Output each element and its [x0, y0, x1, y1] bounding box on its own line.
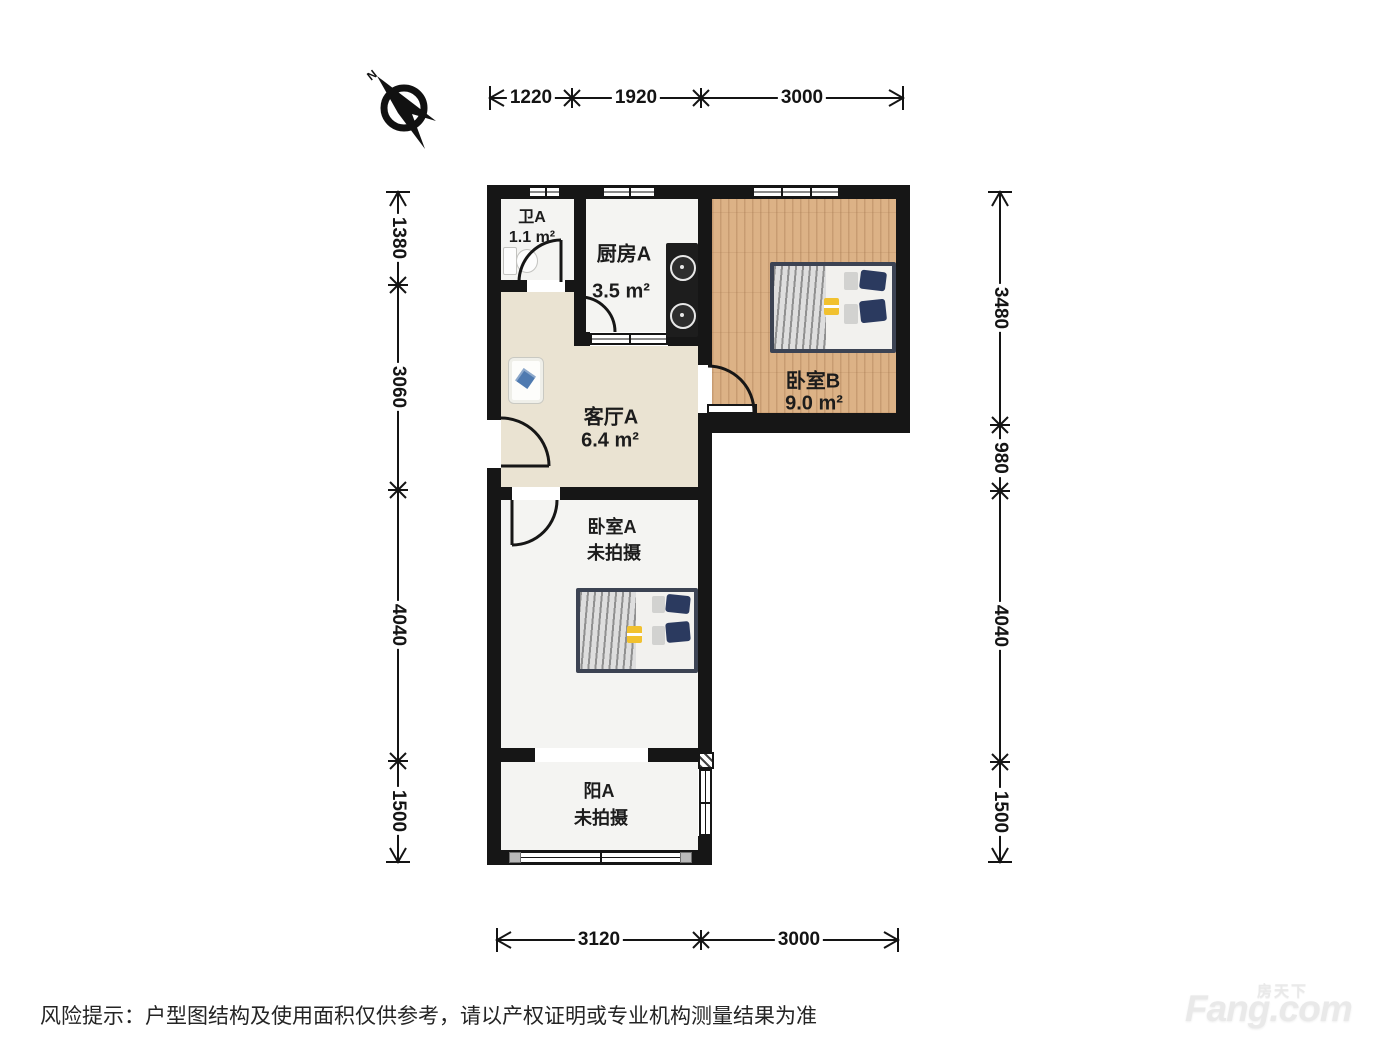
fang-watermark-cn: 房天下 — [1257, 980, 1308, 1001]
room-label-bedroomA-area: 未拍摄 — [587, 539, 641, 565]
dimension-lines — [386, 86, 1012, 952]
dim-left-3: 1500 — [387, 787, 409, 835]
fang-watermark: 房天下 Fang.com — [1185, 988, 1395, 1030]
dim-top-1: 1920 — [612, 87, 660, 109]
dim-left-1: 3060 — [387, 363, 409, 411]
dim-left-0: 1380 — [387, 214, 409, 262]
room-label-bath-name: 卫A — [518, 203, 546, 227]
risk-disclaimer: 风险提示：户型图结构及使用面积仅供参考，请以产权证明或专业机构测量结果为准 — [40, 1000, 817, 1030]
dim-right-0: 3480 — [989, 284, 1011, 332]
room-label-balcony-name: 阳A — [584, 777, 615, 803]
room-label-bedroomB-name: 卧室B — [786, 365, 840, 394]
room-label-kitchen-name: 厨房A — [597, 238, 651, 267]
dim-right-1: 980 — [989, 439, 1011, 477]
room-label-living-area: 6.4 m² — [581, 430, 639, 453]
room-label-kitchen-area: 3.5 m² — [592, 281, 650, 304]
floorplan-canvas: N — [0, 0, 1400, 1050]
room-label-living-name: 客厅A — [584, 401, 638, 430]
dim-right-2: 4040 — [989, 602, 1011, 650]
plan-overlay: N — [0, 0, 1400, 1050]
dim-right-3: 1500 — [989, 788, 1011, 836]
room-label-balcony-area: 未拍摄 — [574, 804, 628, 830]
compass-icon: N — [364, 67, 436, 149]
dim-bottom-1: 3000 — [775, 929, 823, 951]
dim-top-0: 1220 — [507, 87, 555, 109]
dim-left-2: 4040 — [387, 601, 409, 649]
compass-north-label: N — [364, 67, 379, 83]
dim-top-2: 3000 — [778, 87, 826, 109]
room-label-bedroomA-name: 卧室A — [588, 513, 637, 539]
door-bedroomA — [512, 500, 557, 545]
dim-bottom-0: 3120 — [575, 929, 623, 951]
door-bedroomB — [708, 366, 756, 413]
room-label-bath-area: 1.1 m² — [509, 229, 555, 247]
door-entry — [501, 418, 549, 466]
room-label-bedroomB-area: 9.0 m² — [785, 393, 843, 416]
